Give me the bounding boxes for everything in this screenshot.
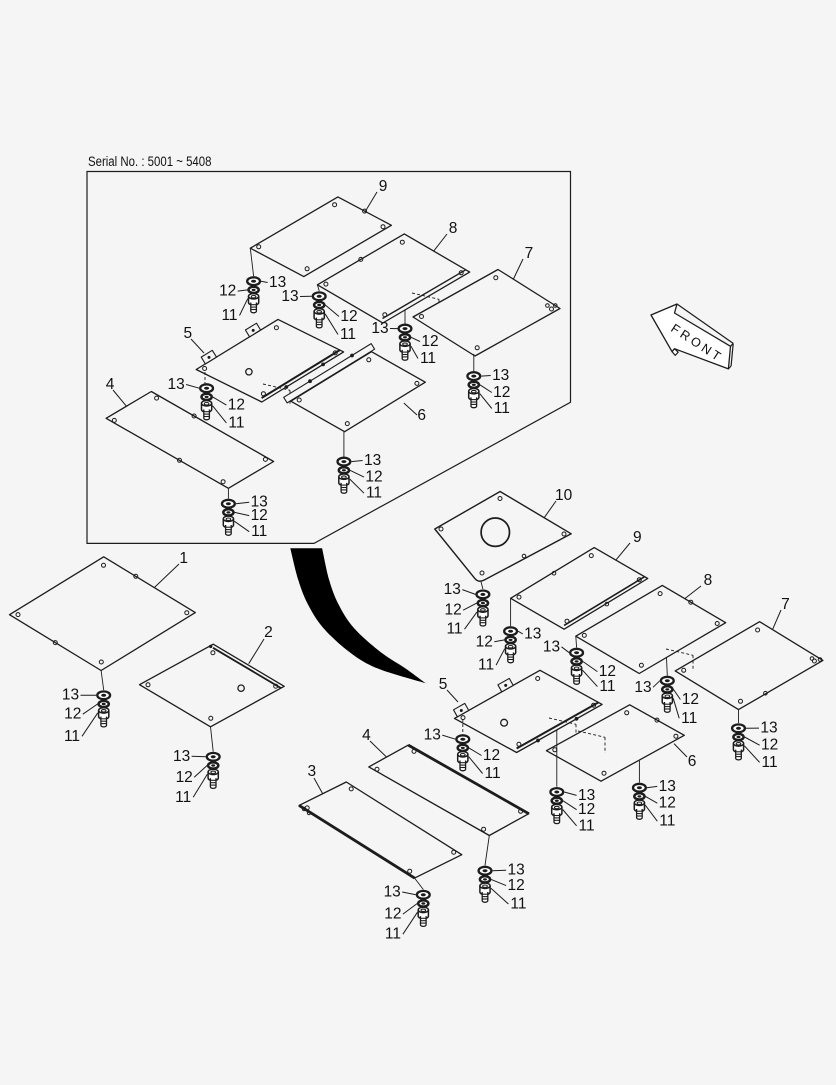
svg-text:13: 13 xyxy=(62,687,79,704)
svg-text:12: 12 xyxy=(64,706,81,723)
svg-text:5: 5 xyxy=(439,676,448,693)
svg-text:11: 11 xyxy=(510,896,526,913)
svg-text:11: 11 xyxy=(599,678,615,695)
svg-text:13: 13 xyxy=(424,727,441,744)
svg-text:12: 12 xyxy=(421,333,438,350)
svg-text:12: 12 xyxy=(219,283,236,300)
svg-text:13: 13 xyxy=(364,452,381,469)
svg-text:13: 13 xyxy=(444,581,461,598)
svg-text:7: 7 xyxy=(525,245,534,262)
svg-text:12: 12 xyxy=(340,308,357,325)
svg-text:11: 11 xyxy=(681,710,697,727)
svg-text:12: 12 xyxy=(483,747,500,764)
svg-text:1: 1 xyxy=(179,550,188,567)
svg-text:13: 13 xyxy=(384,884,401,901)
svg-text:13: 13 xyxy=(760,720,777,737)
svg-text:4: 4 xyxy=(362,727,371,744)
svg-text:11: 11 xyxy=(340,326,356,343)
svg-text:11: 11 xyxy=(446,621,462,638)
svg-text:12: 12 xyxy=(384,906,401,923)
svg-text:11: 11 xyxy=(659,813,675,830)
svg-text:10: 10 xyxy=(555,487,573,504)
svg-text:13: 13 xyxy=(634,679,651,696)
svg-text:11: 11 xyxy=(579,817,595,834)
svg-text:13: 13 xyxy=(492,367,509,384)
svg-text:13: 13 xyxy=(167,376,184,393)
svg-text:12: 12 xyxy=(176,769,193,786)
svg-text:11: 11 xyxy=(251,523,267,540)
svg-text:9: 9 xyxy=(379,178,388,195)
svg-text:12: 12 xyxy=(659,795,676,812)
svg-text:11: 11 xyxy=(478,657,494,674)
svg-text:11: 11 xyxy=(385,926,401,943)
svg-text:3: 3 xyxy=(307,763,316,780)
svg-text:12: 12 xyxy=(578,801,595,818)
svg-text:6: 6 xyxy=(417,407,426,424)
svg-text:8: 8 xyxy=(449,220,458,237)
svg-text:12: 12 xyxy=(493,384,510,401)
svg-text:12: 12 xyxy=(365,469,382,486)
svg-text:13: 13 xyxy=(659,778,676,795)
svg-text:13: 13 xyxy=(371,320,388,337)
svg-text:11: 11 xyxy=(762,754,778,771)
svg-text:11: 11 xyxy=(420,350,436,367)
svg-text:8: 8 xyxy=(704,572,713,589)
svg-text:12: 12 xyxy=(228,397,245,414)
svg-text:9: 9 xyxy=(633,529,642,546)
svg-text:11: 11 xyxy=(485,765,501,782)
svg-text:4: 4 xyxy=(106,376,115,393)
svg-text:7: 7 xyxy=(781,596,790,613)
svg-text:Serial No. : 5001 ~ 5408: Serial No. : 5001 ~ 5408 xyxy=(88,154,212,170)
svg-text:11: 11 xyxy=(228,414,244,431)
svg-text:11: 11 xyxy=(494,400,510,417)
svg-text:13: 13 xyxy=(281,288,298,305)
svg-text:12: 12 xyxy=(507,877,524,894)
svg-text:12: 12 xyxy=(682,691,699,708)
svg-text:2: 2 xyxy=(264,624,273,641)
svg-text:11: 11 xyxy=(366,485,382,502)
svg-text:12: 12 xyxy=(476,633,493,650)
svg-text:13: 13 xyxy=(543,638,560,655)
svg-text:13: 13 xyxy=(524,625,541,642)
svg-text:13: 13 xyxy=(173,748,190,765)
svg-text:11: 11 xyxy=(175,789,191,806)
svg-text:11: 11 xyxy=(221,307,237,324)
svg-text:12: 12 xyxy=(251,507,268,524)
svg-text:6: 6 xyxy=(688,753,697,770)
svg-text:12: 12 xyxy=(761,737,778,754)
svg-text:12: 12 xyxy=(444,602,461,619)
svg-text:11: 11 xyxy=(64,728,80,745)
svg-text:5: 5 xyxy=(183,325,192,342)
